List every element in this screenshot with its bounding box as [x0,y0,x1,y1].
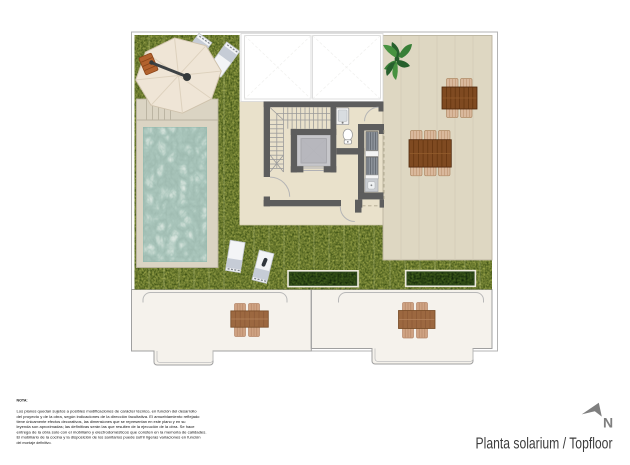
svg-text:entrega de la obra solo con el: entrega de la obra solo con el mobiliari… [17,430,207,434]
svg-text:N: N [603,415,613,431]
svg-text:NOTA:: NOTA: [17,399,28,403]
svg-text:tiene únicamente efectos decor: tiene únicamente efectos decorativos, la… [17,420,186,424]
svg-text:leyenda son aproximadas; las d: leyenda son aproximadas; las definitivas… [17,425,195,429]
svg-text:Planta solarium / Topfloor: Planta solarium / Topfloor [476,436,614,453]
svg-text:del montaje definitivo.: del montaje definitivo. [17,441,52,445]
svg-text:del proyecto y de la obra, seg: del proyecto y de la obra, según indicac… [17,415,200,419]
svg-text:Los planos quedan sujetos a po: Los planos quedan sujetos a posibles mod… [17,410,197,414]
svg-text:El mobiliario de la cocina y l: El mobiliario de la cocina y la disposic… [17,436,201,440]
